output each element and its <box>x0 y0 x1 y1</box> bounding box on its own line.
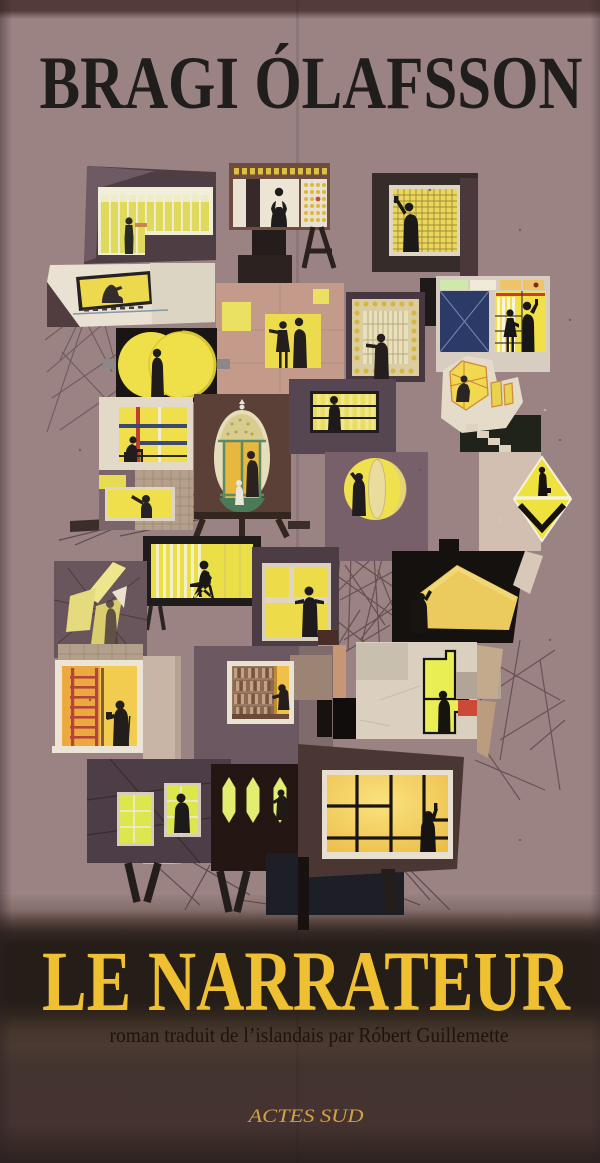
svg-text:roman traduit de l’islandais p: roman traduit de l’islandais par Róbert … <box>110 1023 509 1047</box>
svg-text:BRAGI ÓLAFSSON: BRAGI ÓLAFSSON <box>40 42 583 125</box>
svg-text:LE NARRATEUR: LE NARRATEUR <box>42 933 571 1029</box>
svg-text:ACTES SUD: ACTES SUD <box>246 1106 364 1127</box>
